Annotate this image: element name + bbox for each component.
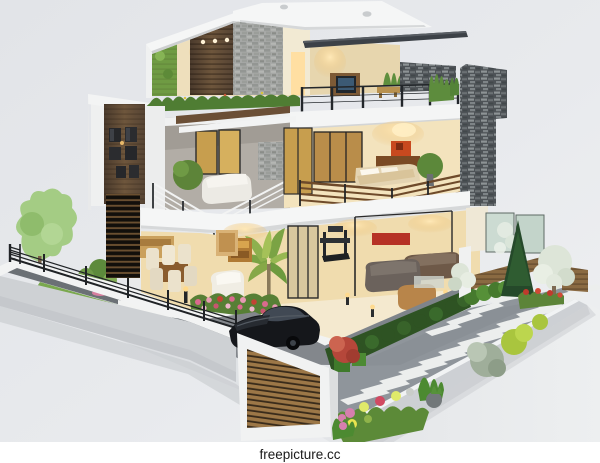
- svg-text:freepicture.cc: freepicture.cc: [259, 447, 340, 462]
